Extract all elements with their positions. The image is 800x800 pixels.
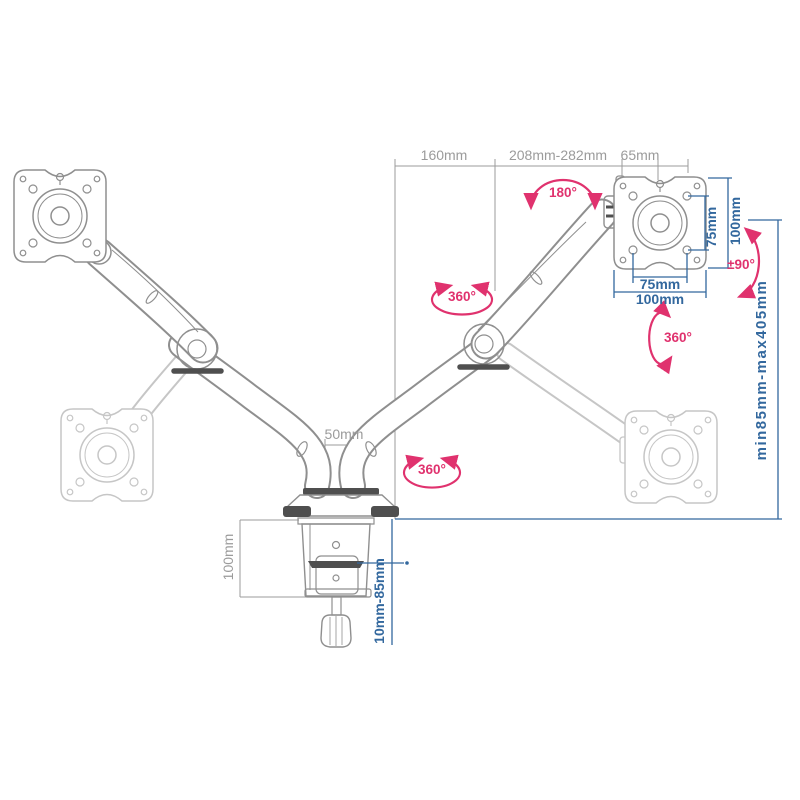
label-rotation-90: ±90° [727,257,755,272]
ghost-position-right [506,352,717,503]
vesa-plate-ghost-right [625,411,717,503]
ghost-position-left [61,353,191,501]
label-height-range: min85mm-max405mm [753,280,770,461]
label-clamp-height: 100mm [220,534,236,581]
clamp-pad [308,561,364,568]
label-reach-left: 160mm [421,147,468,163]
label-vesa-75-v: 75mm [703,207,719,247]
label-swivel-head: 360° [664,330,692,345]
vesa-plate-top-right [614,177,706,269]
label-vesa-75-h: 75mm [640,276,680,292]
vesa-plate-top-left [14,170,106,262]
label-desk-thickness: 10mm-85mm [371,558,387,644]
clamp-body [302,524,370,596]
label-vesa-100-v: 100mm [727,197,743,245]
label-reach-right: 208mm-282mm [509,147,607,163]
label-swivel-elbow: 360° [448,289,476,304]
label-tilt-180: 180° [549,185,577,200]
base-collar [303,488,379,495]
label-swivel-base: 360° [418,462,446,477]
base-foot-right [371,506,399,517]
label-pole-width: 50mm [325,426,364,442]
clamp-screw-rod [332,597,341,615]
diagram-canvas: 160mm 208mm-282mm 65mm 50mm 100mm 75mm 1… [0,0,800,800]
label-vesa-100-h: 100mm [636,291,684,307]
base-foot-left [283,506,311,517]
vesa-head-right [604,176,706,269]
monitor-arm-diagram: 160mm 208mm-282mm 65mm 50mm 100mm 75mm 1… [0,0,800,800]
arm-right [351,214,602,486]
vesa-plate-ghost-left [61,409,153,501]
vesa-head-left [14,170,106,262]
label-vesa-depth: 65mm [621,147,660,163]
